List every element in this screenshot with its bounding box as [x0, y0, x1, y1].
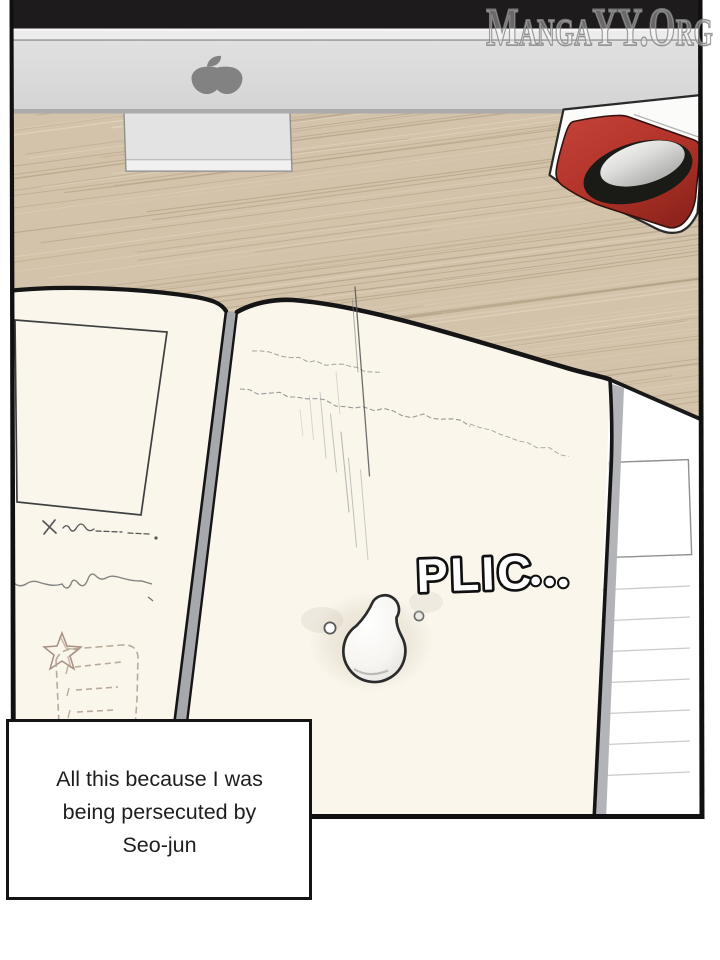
- svg-text:PLIC: PLIC: [416, 545, 535, 602]
- svg-text:MangaYY.Org: MangaYY.Org: [486, 0, 713, 57]
